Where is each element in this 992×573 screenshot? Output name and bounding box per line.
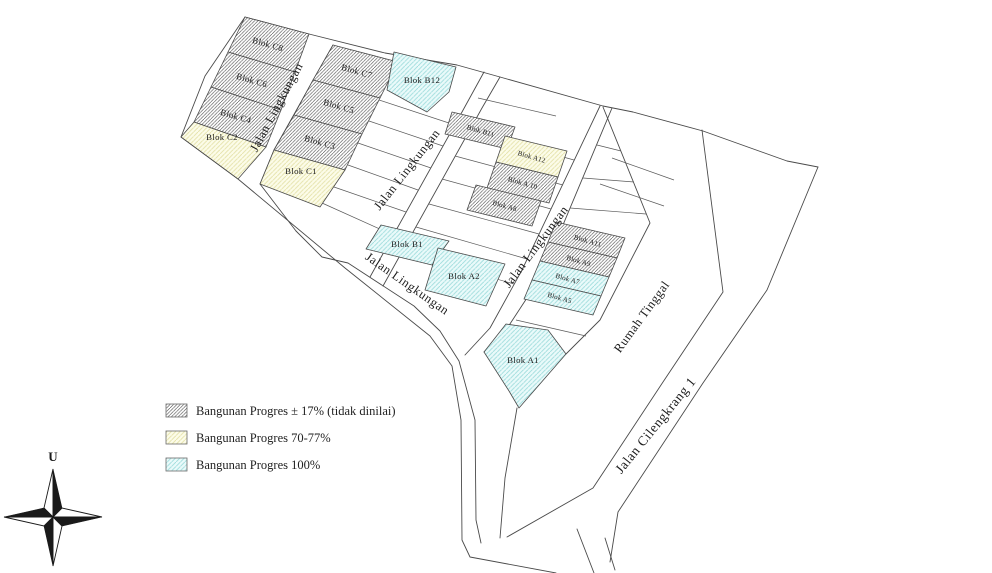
block-label-b12: Blok B12 <box>404 75 440 85</box>
parcel-divider <box>583 178 634 182</box>
parcel-divider <box>478 98 556 116</box>
road-cilengkrang-east-edge <box>610 167 818 562</box>
legend-swatch-hatch-yellow <box>166 431 187 444</box>
block-label-a2: Blok A2 <box>448 271 480 281</box>
road-label-jalan-cilengkrang-1: Jalan Cilengkrang 1 <box>612 374 699 476</box>
legend-label: Bangunan Progres 70-77% <box>196 431 331 445</box>
parcel-divider <box>612 158 674 180</box>
compass-rose: U <box>4 449 102 566</box>
compass-west-arm-dark <box>4 508 53 517</box>
block-label-c1: Blok C1 <box>285 166 317 176</box>
block-label-b1: Blok B1 <box>391 239 423 249</box>
road-c-east-parallel-edge <box>500 408 517 538</box>
compass-north-label: U <box>48 449 58 464</box>
legend-label: Bangunan Progres 100% <box>196 458 320 472</box>
parcel-divider <box>570 208 646 214</box>
legend-swatch-hatch-cyan <box>166 458 187 471</box>
branch-road-west-edge <box>577 529 594 573</box>
legend-item-progress-100: Bangunan Progres 100% <box>166 458 320 472</box>
block-label-c2: Blok C2 <box>206 132 238 142</box>
area-label-rumah-tinggal: Rumah Tinggal <box>611 278 672 355</box>
road-label-jalan-lingkungan-2: Jalan Lingkungan <box>371 126 443 213</box>
legend-item-progress-70-77: Bangunan Progres 70-77% <box>166 431 331 445</box>
block-a1 <box>484 324 566 408</box>
compass-east-arm-light <box>53 508 102 517</box>
site-plan-page: Blok C8 Blok C6 Blok C4 Blok C2 Blok C7 … <box>0 0 992 573</box>
site-plan-map: Blok C8 Blok C6 Blok C4 Blok C2 Blok C7 … <box>0 0 992 573</box>
legend-label: Bangunan Progres ± 17% (tidak dinilai) <box>196 404 396 418</box>
compass-west-arm-light <box>4 517 53 526</box>
legend-item-progress-17: Bangunan Progres ± 17% (tidak dinilai) <box>166 404 396 418</box>
legend: Bangunan Progres ± 17% (tidak dinilai) B… <box>166 404 396 472</box>
parcel-divider <box>600 184 664 206</box>
parcel-divider <box>597 145 621 151</box>
legend-swatch-hatch-dark <box>166 404 187 417</box>
block-label-a1: Blok A1 <box>507 355 539 365</box>
compass-south-arm-light <box>53 517 62 566</box>
